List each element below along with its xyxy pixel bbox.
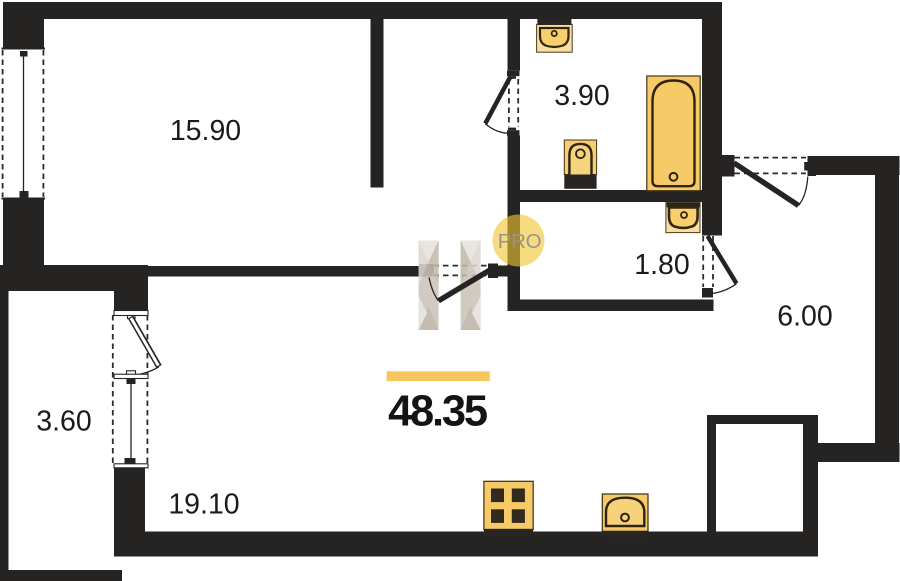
svg-text:1.80: 1.80 [634,249,689,281]
svg-text:PRO: PRO [498,230,542,253]
svg-text:6.00: 6.00 [777,301,832,333]
svg-text:48.35: 48.35 [388,388,487,436]
svg-text:3.60: 3.60 [36,406,91,438]
svg-text:3.90: 3.90 [554,80,609,112]
svg-text:15.90: 15.90 [170,115,241,147]
svg-text:19.10: 19.10 [168,489,239,521]
